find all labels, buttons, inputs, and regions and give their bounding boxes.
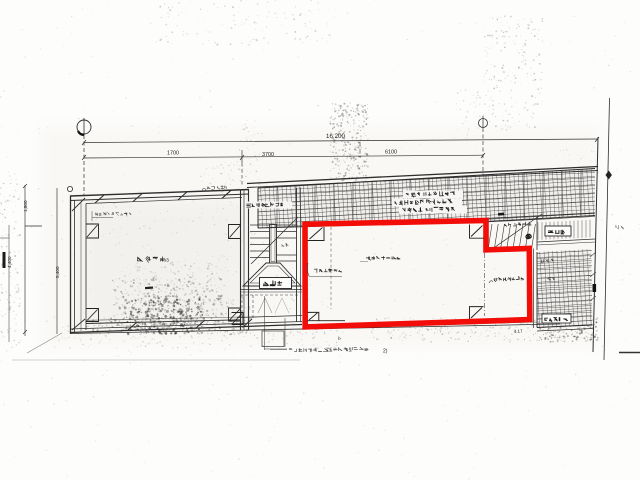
svg-text:No3: No3 [160,258,169,264]
svg-text:4,400: 4,400 [7,256,12,268]
svg-text:1700: 1700 [167,151,179,157]
svg-text:1,800: 1,800 [23,200,28,212]
svg-text:2): 2) [383,349,388,355]
svg-text:3700: 3700 [262,152,274,158]
svg-text:6100: 6100 [385,150,397,156]
svg-text:5,400: 5,400 [55,266,60,278]
svg-text:4.17: 4.17 [514,329,523,334]
svg-text:16,200: 16,200 [326,133,346,140]
